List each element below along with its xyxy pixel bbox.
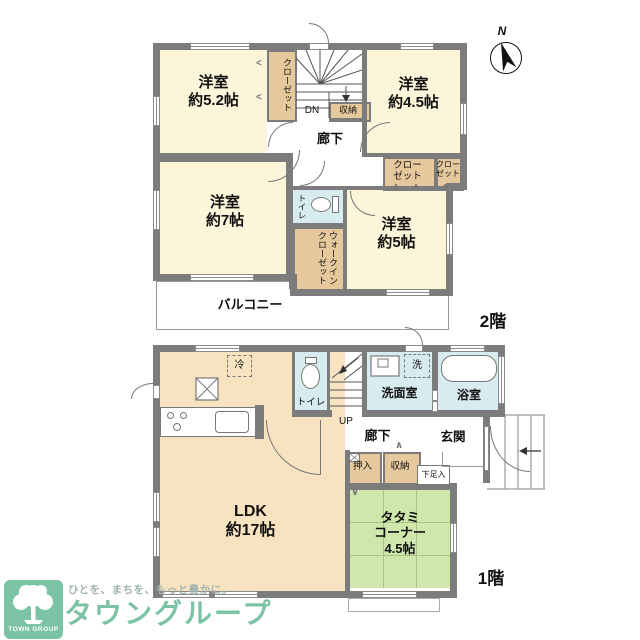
window <box>450 523 457 553</box>
toilet-bowl-icon <box>301 364 320 389</box>
bathtub-icon <box>441 355 497 382</box>
town-group-logo: TOWN GROUP <box>4 580 63 639</box>
tatami-door-mark: ∨ <box>351 487 359 498</box>
window <box>190 274 254 281</box>
window <box>446 223 453 255</box>
porch-outline <box>348 598 440 612</box>
toilet-1f-label: トイレ <box>293 397 329 408</box>
floor1-label: 1階 <box>468 569 514 589</box>
fridge-label: 冷 <box>227 360 252 372</box>
oshiire-label: 押入 <box>347 461 378 472</box>
room-name: 洋室 <box>347 216 446 234</box>
window <box>153 96 160 126</box>
wall <box>153 345 160 598</box>
door-arc <box>131 383 153 399</box>
storage-1f-label: 収納 <box>383 461 417 472</box>
back-door-gap <box>153 385 160 399</box>
closet-label-line: ゼット <box>383 171 432 182</box>
window <box>190 43 250 50</box>
hallway-2f-label: 廊下 <box>300 131 360 146</box>
room-size: 4.5帖 <box>352 541 448 556</box>
genkan-step-line <box>442 452 443 467</box>
logo-tagline: ひとを、まちを、もっと豊かに。 <box>68 584 328 596</box>
door-arc <box>268 122 293 147</box>
window <box>400 43 434 50</box>
window <box>460 103 467 135</box>
door-gap <box>309 43 329 50</box>
room-name: タタミ <box>352 510 448 525</box>
stairs-1f <box>330 352 362 415</box>
toilet-tank-icon <box>305 357 317 364</box>
room-45-label: 洋室 約4.5帖 <box>367 76 460 111</box>
room-size: 約5.2帖 <box>160 92 267 110</box>
window <box>386 289 430 296</box>
stairs-up-label: UP <box>330 416 362 428</box>
room-5-label: 洋室 約5帖 <box>347 216 446 251</box>
wall <box>293 223 343 227</box>
closet-a-label: クロー ゼット <box>383 160 432 182</box>
door-arc <box>300 161 325 186</box>
floorplan-canvas: バルコニー <box>0 0 640 640</box>
window <box>450 345 485 352</box>
toilet-2f-label: トイレ <box>295 193 307 221</box>
room-name: 洋室 <box>367 76 460 94</box>
room-size: 約7帖 <box>160 212 290 230</box>
wic-label: ウォークインクローゼット <box>298 231 338 285</box>
range-hood-icon <box>195 377 219 401</box>
room-name: LDK <box>193 503 308 522</box>
wall <box>446 183 467 190</box>
wall <box>432 352 438 390</box>
stove-burner <box>180 412 187 419</box>
entrance-label: 玄関 <box>430 430 476 445</box>
room-name: 洋室 <box>160 194 290 212</box>
north-arrow-icon <box>490 42 524 76</box>
door-arc <box>268 150 300 182</box>
room-size: 約4.5帖 <box>367 94 460 112</box>
room-size: 約5帖 <box>347 234 446 252</box>
washroom-label: 洗面室 <box>367 386 432 400</box>
wall <box>367 153 460 157</box>
closet-label-line: クロー <box>383 160 432 171</box>
toilet-tank-icon <box>332 196 339 213</box>
window <box>195 345 240 352</box>
logo-name: タウングループ <box>64 597 354 630</box>
compass <box>490 42 524 76</box>
wall <box>292 410 332 417</box>
closet-door-mark: ∧ <box>412 182 420 193</box>
floor2-label: 2階 <box>470 312 516 332</box>
shoe-box-label: 下足入 <box>417 470 450 479</box>
window <box>362 591 417 598</box>
town-group-text: TOWN GROUP <box>4 626 63 634</box>
door-leaf <box>320 420 321 475</box>
balcony-label: バルコニー <box>165 297 335 312</box>
wall <box>289 186 347 190</box>
vanity-sink-icon <box>370 355 400 377</box>
door-gap <box>405 345 423 352</box>
toilet-bowl-icon <box>311 197 331 212</box>
closet-door-mark: ∧ <box>392 182 400 193</box>
tree-icon <box>4 582 63 626</box>
stove-burner <box>167 412 174 419</box>
kitchen-sink <box>215 411 249 433</box>
closet-door-mark: ∧ <box>441 182 449 193</box>
entrance-door-gap <box>484 426 489 471</box>
stove-burner <box>173 423 181 431</box>
hallway-1f-label: 廊下 <box>350 428 405 443</box>
genkan-step-line <box>442 466 483 467</box>
bath-label: 浴室 <box>438 388 500 402</box>
tatami-label: タタミ コーナー 4.5帖 <box>352 510 448 556</box>
window <box>153 190 160 230</box>
closet-left-label: クローゼット <box>269 54 292 116</box>
stairs-dn-label: DN <box>298 105 326 117</box>
room-7-label: 洋室 約7帖 <box>160 194 290 229</box>
north-label: N <box>492 24 512 38</box>
room-52-label: 洋室 約5.2帖 <box>160 74 267 109</box>
closet-b-label: クロー ゼット <box>436 160 460 179</box>
door-arc <box>309 23 329 43</box>
wall <box>153 43 160 281</box>
ldk-label: LDK 約17帖 <box>193 503 308 541</box>
wall <box>329 118 367 122</box>
room-name: 洋室 <box>160 74 267 92</box>
window <box>153 492 160 522</box>
room-name: コーナー <box>352 525 448 540</box>
room-size: 約17帖 <box>193 522 308 541</box>
closet-door-mark: < <box>256 58 262 69</box>
window <box>153 527 160 557</box>
closet-label-line: ゼット <box>436 169 460 178</box>
wall <box>362 345 367 415</box>
washer-label: 洗 <box>404 360 430 372</box>
wall <box>255 405 264 439</box>
storage-2f-label: 収納 <box>329 105 367 116</box>
